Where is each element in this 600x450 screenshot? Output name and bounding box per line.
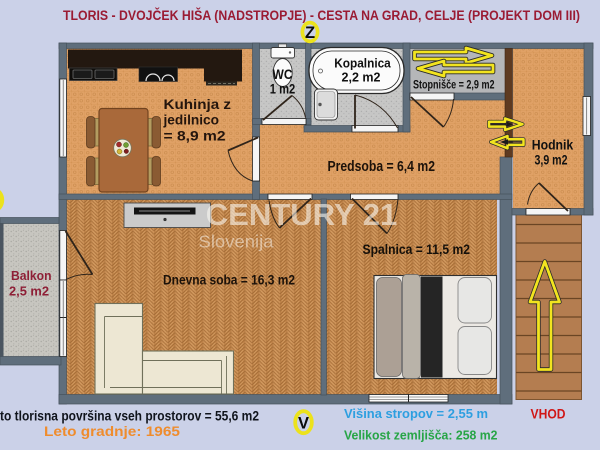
svg-text:Slovenija: Slovenija [199,232,274,252]
svg-text:Hodnik: Hodnik [532,137,574,153]
svg-text:Kuhinja z: Kuhinja z [164,96,232,112]
svg-text:= 8,9 m2: = 8,9 m2 [164,128,226,144]
svg-text:WC: WC [273,67,293,82]
svg-text:V: V [298,414,309,432]
svg-text:Balkon: Balkon [11,269,52,283]
svg-text:Kopalnica: Kopalnica [334,56,391,71]
svg-text:2,5 m2: 2,5 m2 [9,285,49,299]
svg-text:VHOD: VHOD [531,407,566,422]
svg-text:Spalnica = 11,5 m2: Spalnica = 11,5 m2 [363,241,471,257]
svg-text:Velikost zemljišča: 258 m2: Velikost zemljišča: 258 m2 [344,428,498,443]
svg-text:3,9 m2: 3,9 m2 [535,152,568,168]
svg-text:Dnevna soba = 16,3 m2: Dnevna soba = 16,3 m2 [163,272,295,288]
svg-text:Predsoba = 6,4 m2: Predsoba = 6,4 m2 [328,159,436,175]
svg-text:jedilnico: jedilnico [163,112,219,128]
svg-text:1 m2: 1 m2 [270,82,296,97]
svg-text:2,2 m2: 2,2 m2 [342,70,381,85]
svg-text:Višina stropov = 2,55 m: Višina stropov = 2,55 m [344,406,488,421]
svg-text:Z: Z [305,24,315,42]
svg-text:CENTURY 21: CENTURY 21 [206,197,398,232]
svg-text:to tlorisna površina vseh pros: to tlorisna površina vseh prostorov = 55… [0,409,259,424]
svg-text:Leto gradnje: 1965: Leto gradnje: 1965 [44,424,181,439]
svg-text:Stopnišče = 2,9 m2: Stopnišče = 2,9 m2 [413,78,495,92]
svg-text:TLORIS - DVOJČEK HIŠA (NADSTRO: TLORIS - DVOJČEK HIŠA (NADSTROPJE) - CES… [63,8,580,23]
